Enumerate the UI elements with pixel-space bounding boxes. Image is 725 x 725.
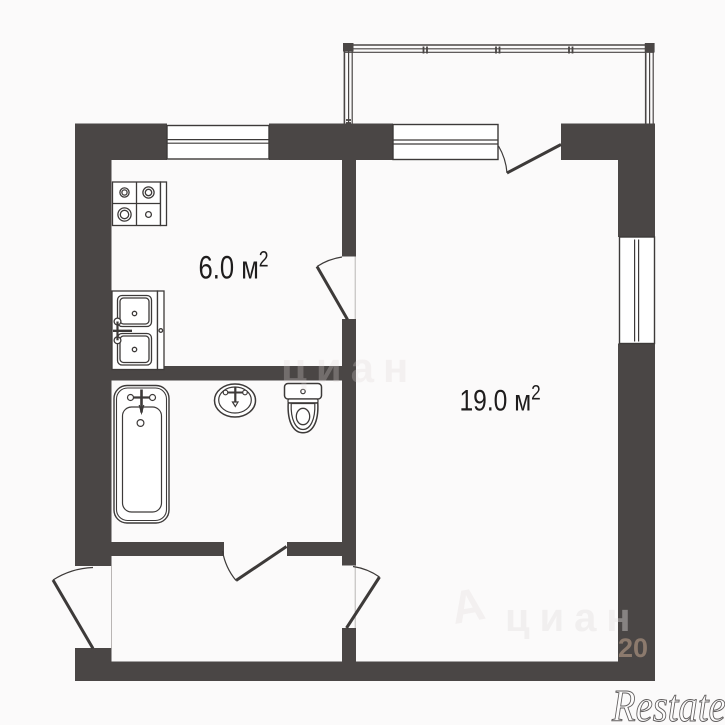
svg-text:19.0 м2: 19.0 м2 [460, 382, 541, 417]
svg-text:циан: циан [281, 344, 417, 391]
svg-text:Restate: Restate [611, 681, 725, 725]
svg-text:20: 20 [618, 633, 648, 663]
svg-text:6.0 м2: 6.0 м2 [199, 248, 269, 287]
